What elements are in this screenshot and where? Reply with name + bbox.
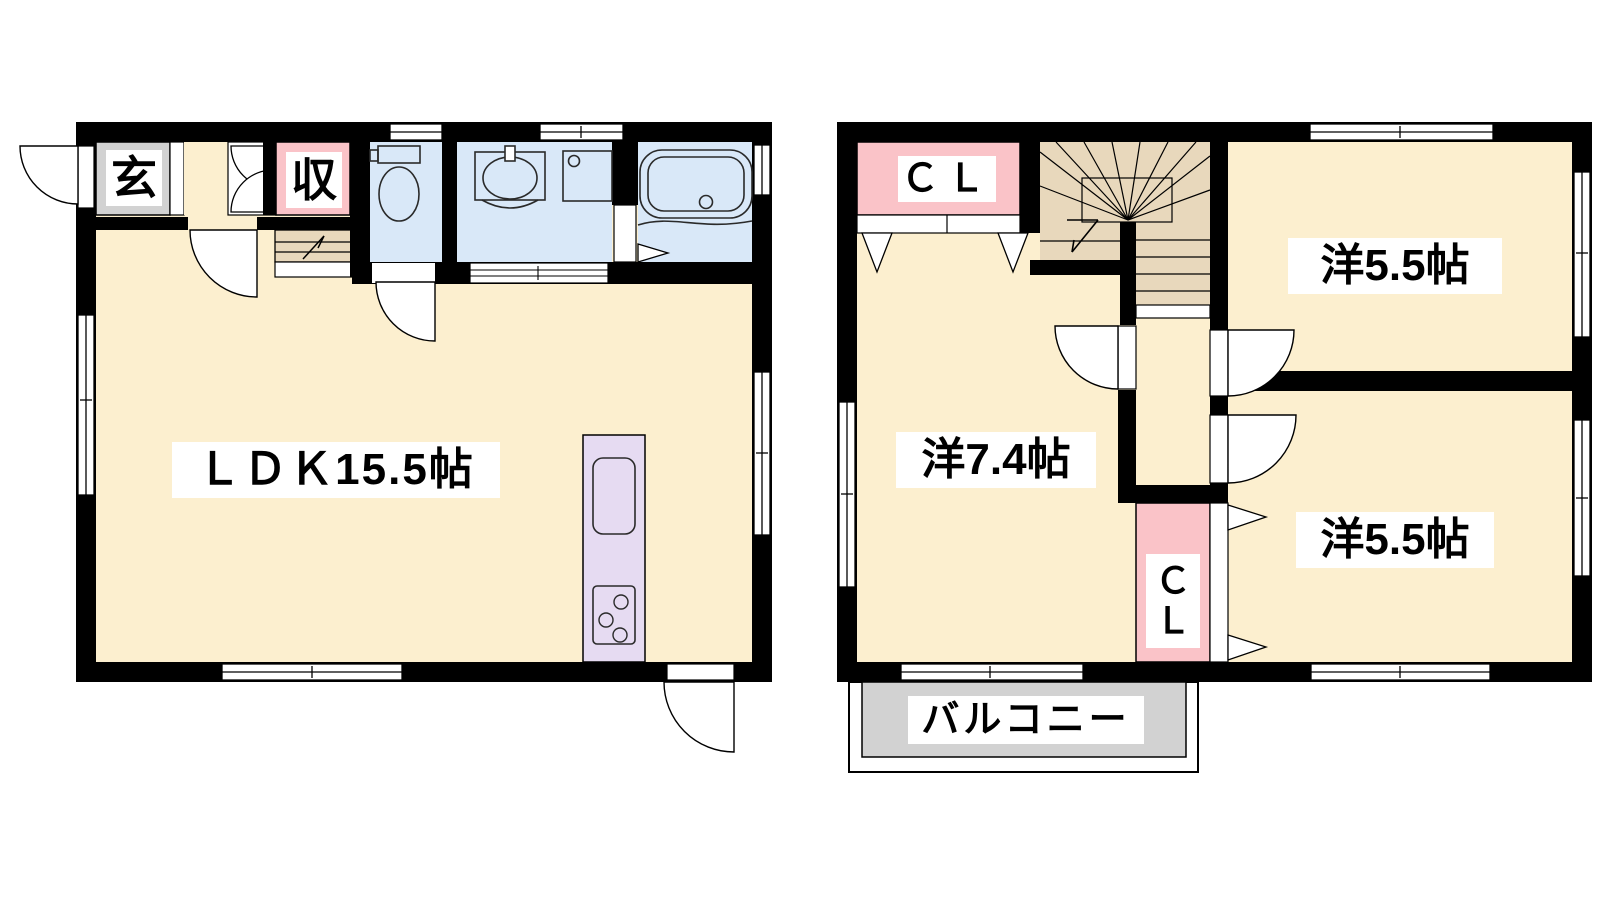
window-right-room-tr [1574,172,1590,337]
window-bottom-room-br [1311,664,1490,680]
toilet-doorway [372,263,435,283]
kitchen-counter [583,435,645,662]
window-right-bath [754,145,770,195]
genkan-step [170,142,184,215]
washroom-sliding-door [470,263,608,283]
hall-floor [184,142,228,215]
label-closet-lower-c: Ｃ [1155,563,1191,599]
floor-plan-page: 玄 収 ＬＤＫ15.5帖 ＣＬ 洋5.5帖 洋7.4帖 洋5.5帖 Ｃ Ｌ バル… [0,0,1600,900]
back-doorway [667,664,734,680]
label-closet-upper: ＣＬ [898,156,996,202]
window-left-room-l [839,402,855,587]
window-top-washroom [540,124,623,140]
room-br-doorway [1210,415,1228,483]
entrance-door [20,146,78,204]
window-top-room-tr [1310,124,1493,140]
back-door [664,682,734,752]
window-bottom-ldk [222,664,402,680]
label-entrance: 玄 [106,150,162,206]
label-ldk: ＬＤＫ15.5帖 [172,442,500,498]
label-balcony: バルコニー [908,696,1144,744]
window-balcony-door [901,664,1083,680]
window-top-toilet [390,124,442,140]
label-storage: 収 [286,152,342,208]
entrance-doorway [78,146,94,208]
window-right-room-br [1574,420,1590,576]
label-room-left: 洋7.4帖 [896,432,1096,488]
label-room-bottom-right: 洋5.5帖 [1296,512,1494,568]
label-closet-lower-l: Ｌ [1155,603,1191,639]
floor1 [20,122,772,752]
label-room-top-right: 洋5.5帖 [1288,238,1502,294]
room-l-doorway [1118,326,1136,389]
label-closet-lower: Ｃ Ｌ [1146,554,1200,648]
window-left-ldk [78,315,94,495]
room-tr-doorway [1210,330,1228,396]
staircase-1f [275,230,352,277]
window-right-ldk [754,372,770,535]
